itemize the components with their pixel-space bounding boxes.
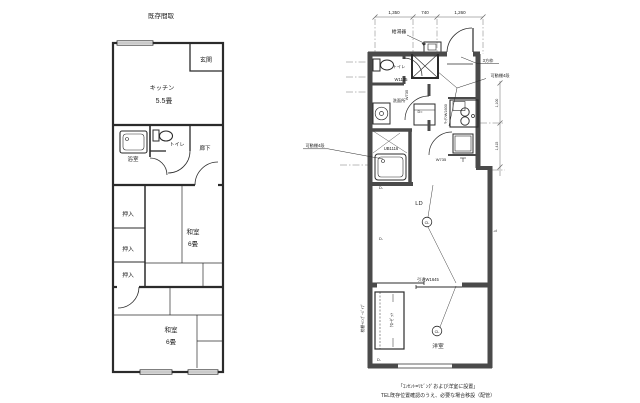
kitchen-window bbox=[117, 41, 153, 45]
kitchen-area: ｷｯﾁﾝW1600 W735 bbox=[429, 98, 478, 162]
entry-door bbox=[447, 28, 473, 64]
kitchen-width-vertical: ｷｯﾁﾝW1600 bbox=[443, 104, 448, 124]
washroom-label: 洗面所 bbox=[393, 97, 406, 104]
closet3-label: 押入 bbox=[122, 271, 134, 279]
d-mark-5: -d bbox=[493, 229, 496, 233]
washitsu2-size: 6畳 bbox=[166, 338, 177, 346]
dim-right-1: 1,100 bbox=[495, 99, 499, 108]
bathtub2-icon bbox=[375, 154, 406, 180]
mid-wall bbox=[113, 162, 223, 185]
shelf-pipe-vertical-label: 枕棚+ﾊﾝｶﾞｰﾊﾟｲﾌﾟ bbox=[360, 304, 365, 333]
washitsu1-label: 和室 bbox=[187, 227, 201, 236]
floorplan-sheet: { "page": { "bg": "#ffffff", "line_color… bbox=[0, 0, 640, 403]
genkan-label: 玄関 bbox=[200, 56, 212, 64]
cl-bedroom-label: CL bbox=[435, 330, 440, 334]
living-dining: LD CL bbox=[415, 185, 456, 327]
closet2-label: 押入 bbox=[122, 245, 134, 253]
kitchen-label: キッチン bbox=[150, 85, 175, 92]
d-mark-4: D- bbox=[377, 358, 382, 362]
water-area: 浴室 トイレ 廊下 bbox=[113, 125, 223, 175]
dim-top-2: 740 bbox=[421, 10, 429, 15]
kitchen-size-label: 5.5畳 bbox=[156, 97, 173, 105]
closet-vertical-label: ｸﾛｰｾﾞｯﾄ bbox=[389, 313, 394, 328]
water-heater-label: 給湯器 bbox=[392, 28, 407, 35]
floorplan-drawing: 既存間取 玄関 キッチン 5.5畳 浴室 bbox=[0, 0, 640, 403]
bedroom: CL 洋室 ｸﾛｰｾﾞｯﾄ 枕棚+ﾊﾝｶﾞｰﾊﾟｲﾌﾟ bbox=[360, 292, 444, 350]
toilet-width-label: W1135 bbox=[395, 77, 409, 82]
top-dimension: 1,350 740 1,260 bbox=[373, 10, 486, 54]
closet1-label: 押入 bbox=[122, 210, 134, 218]
right-outer-walls bbox=[368, 52, 492, 368]
footnote-1: 「ｺﾝｾﾝﾄ=ﾘﾋﾞﾝｸﾞおよび洋室に設置」 bbox=[398, 383, 478, 390]
ld-label: LD bbox=[415, 201, 422, 207]
unit-bath-label: UB1116 bbox=[384, 146, 399, 151]
washing-machine-icon bbox=[373, 103, 390, 124]
toilet-icon bbox=[153, 130, 173, 141]
genkan-room: 玄関 bbox=[190, 43, 223, 71]
dim-top-1: 1,350 bbox=[388, 10, 400, 15]
hall-label: 廊下 bbox=[199, 144, 211, 152]
dim-top-3: 1,260 bbox=[454, 10, 466, 15]
shelf-storage bbox=[412, 54, 438, 78]
washitsu1-size: 6畳 bbox=[188, 240, 199, 248]
left-plan-title: 既存間取 bbox=[148, 11, 175, 20]
lower-wall bbox=[113, 287, 223, 308]
footnote-2: TEL既存位置確認のうえ、必要な場合移設（配管） bbox=[381, 392, 495, 399]
d-mark-2: D- bbox=[379, 186, 384, 190]
toilet-label: トイレ bbox=[169, 142, 184, 148]
vanity-icon bbox=[414, 104, 435, 125]
unit-bath: UB1116 bbox=[368, 130, 413, 184]
washitsu1: 和室 6畳 bbox=[145, 185, 223, 287]
bathtub-icon bbox=[120, 131, 147, 153]
cl-living-label: CL bbox=[425, 221, 430, 225]
sliding-door-label: 引違W1645 bbox=[417, 276, 439, 283]
bath-label: 浴室 bbox=[127, 155, 139, 163]
toilet-room: トイレ W1135 bbox=[370, 54, 422, 84]
d-mark-3: D- bbox=[379, 237, 384, 241]
footnotes: 「ｺﾝｾﾝﾄ=ﾘﾋﾞﾝｸﾞおよび洋室に設置」 TEL既存位置確認のうえ、必要な場… bbox=[381, 383, 495, 399]
toilet2-label: トイレ bbox=[393, 64, 406, 69]
right-annotations: 3方枠 可動棚4段 1,100 1,415 bbox=[437, 57, 510, 176]
left-plan: 既存間取 玄関 キッチン 5.5畳 浴室 bbox=[113, 11, 223, 374]
left-outer-wall bbox=[113, 43, 223, 372]
fridge-door-width: W735 bbox=[436, 157, 447, 162]
washitsu2-label: 和室 bbox=[165, 325, 179, 334]
sliding-door: 引違W1645 bbox=[368, 276, 490, 289]
toilet2-icon bbox=[373, 59, 394, 71]
fridge-space bbox=[453, 134, 473, 162]
movable-shelf-left-label: 可動棚4段 bbox=[305, 142, 325, 149]
movable-shelf-right-label: 可動棚4段 bbox=[490, 72, 510, 79]
three-way-frame-label: 3方枠 bbox=[483, 57, 495, 64]
bedroom-closet: ｸﾛｰｾﾞｯﾄ bbox=[375, 292, 404, 349]
dim-right-2: 1,415 bbox=[495, 142, 499, 151]
vanity-mark: D= bbox=[418, 110, 424, 114]
bedroom-label: 洋室 bbox=[432, 342, 444, 350]
water-heater: 給湯器 bbox=[392, 28, 441, 52]
washitsu2: 和室 6畳 bbox=[113, 287, 223, 368]
closet-column: 押入 押入 押入 bbox=[113, 185, 145, 287]
right-plan: 1,350 740 1,260 給湯器 bbox=[303, 10, 510, 399]
